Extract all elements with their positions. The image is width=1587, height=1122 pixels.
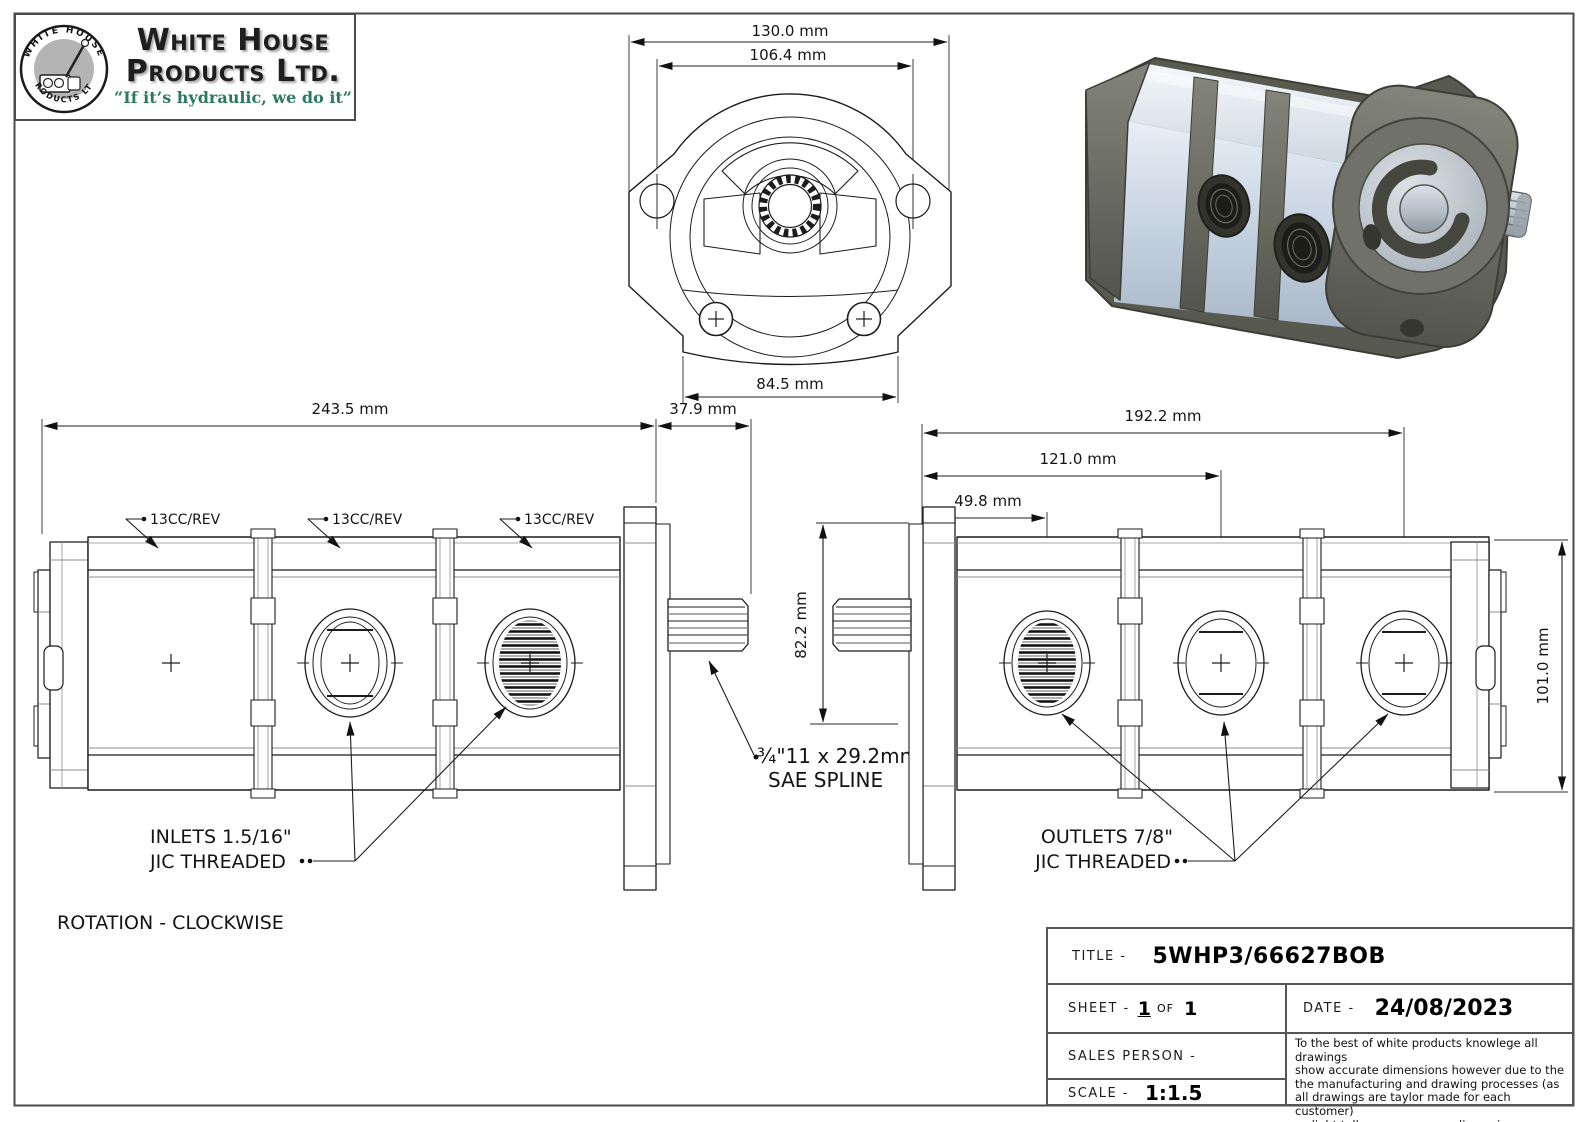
- company-badge-icon: WHITE HOUSE PRODUCTS LTD: [16, 15, 112, 119]
- sheet-of-label: OF: [1157, 1002, 1174, 1015]
- front-dim-holes: 106.4 mm: [750, 46, 827, 64]
- right-dim-height-left: 82.2 mm: [792, 591, 810, 658]
- section-divider: [1118, 529, 1142, 798]
- sheet-cell: SHEET - 1 OF 1: [1048, 985, 1287, 1032]
- drawing-sheet: WHITE HOUSE PRODUCTS LTD White House Pro…: [0, 0, 1587, 1122]
- spline-note-line2: SAE SPLINE: [768, 768, 883, 792]
- title-label: TITLE -: [1072, 949, 1127, 964]
- right-dim-port2: 121.0 mm: [1040, 450, 1117, 468]
- front-dim-body: 84.5 mm: [756, 375, 823, 393]
- disclaimer-line: show accurate dimensions however due to …: [1295, 1064, 1566, 1078]
- date-cell: DATE - 24/08/2023: [1287, 985, 1572, 1032]
- section2-displacement: 13CC/REV: [332, 512, 403, 528]
- scale-value: 1:1.5: [1145, 1081, 1202, 1105]
- sales-scale-row: SALES PERSON - SCALE - 1:1.5 To the best…: [1048, 1034, 1572, 1106]
- title-value: 5WHP3/66627BOB: [1153, 944, 1386, 969]
- company-logo-box: WHITE HOUSE PRODUCTS LTD White House Pro…: [14, 13, 356, 121]
- spline-note-line1: ¾"11 x 29.2mm: [757, 744, 919, 768]
- right-dim-total: 192.2 mm: [1125, 407, 1202, 425]
- disclaimer-text: To the best of white products knowlege a…: [1287, 1034, 1572, 1106]
- front-dim-overall: 130.0 mm: [752, 22, 829, 40]
- right-dim-height-right: 101.0 mm: [1534, 628, 1552, 705]
- spline-shaft-side: [833, 599, 911, 651]
- right-dim-port1: 49.8 mm: [954, 492, 1021, 510]
- inlets-label-line1: INLETS 1.5/16": [150, 826, 292, 848]
- sales-person-cell: SALES PERSON -: [1048, 1034, 1285, 1080]
- front-bolt-left: [700, 303, 733, 336]
- left-dim-shaft: 37.9 mm: [669, 400, 736, 418]
- left-dim-length: 243.5 mm: [312, 400, 389, 418]
- disclaimer-line: a slight tollerance on some dimensions m…: [1295, 1119, 1566, 1122]
- section3-displacement: 13CC/REV: [524, 512, 595, 528]
- disclaimer-line: To the best of white products knowlege a…: [1295, 1037, 1566, 1064]
- front-bolt-right: [848, 303, 881, 336]
- title-block: TITLE - 5WHP3/66627BOB SHEET - 1 OF 1 DA…: [1046, 927, 1574, 1106]
- sheet-total: 1: [1184, 998, 1197, 1020]
- pump-3d-render: [1086, 58, 1532, 358]
- title-row: TITLE - 5WHP3/66627BOB: [1048, 929, 1572, 985]
- company-name: White House Products Ltd. “If it’s hydra…: [112, 15, 354, 119]
- outlets-label-line1: OUTLETS 7/8": [1041, 826, 1173, 848]
- scale-label: SCALE -: [1068, 1086, 1129, 1101]
- section-divider: [1300, 529, 1324, 798]
- section-divider: [251, 529, 275, 798]
- spline-shaft-side: [668, 599, 748, 651]
- date-label: DATE -: [1303, 1001, 1355, 1016]
- disclaimer-line: the manufacturing and drawing processes …: [1295, 1078, 1566, 1092]
- rotation-note: ROTATION - CLOCKWISE: [57, 912, 284, 934]
- company-tagline: “If it’s hydraulic, we do it”: [112, 88, 354, 107]
- sheet-label: SHEET -: [1068, 1001, 1130, 1016]
- company-name-line2: Products Ltd.: [112, 56, 354, 87]
- disclaimer-line: all drawings are taylor made for each cu…: [1295, 1091, 1566, 1118]
- outlets-label-line2: JIC THREADED: [1034, 851, 1171, 873]
- scale-cell: SCALE - 1:1.5: [1048, 1080, 1285, 1106]
- sales-person-label: SALES PERSON -: [1068, 1049, 1196, 1064]
- section-divider: [433, 529, 457, 798]
- inlets-label-line2: JIC THREADED: [149, 851, 286, 873]
- section1-displacement: 13CC/REV: [150, 512, 221, 528]
- date-value: 24/08/2023: [1375, 996, 1514, 1021]
- sheet-date-row: SHEET - 1 OF 1 DATE - 24/08/2023: [1048, 985, 1572, 1034]
- company-name-line1: White House: [112, 25, 354, 56]
- sheet-number: 1: [1138, 998, 1151, 1020]
